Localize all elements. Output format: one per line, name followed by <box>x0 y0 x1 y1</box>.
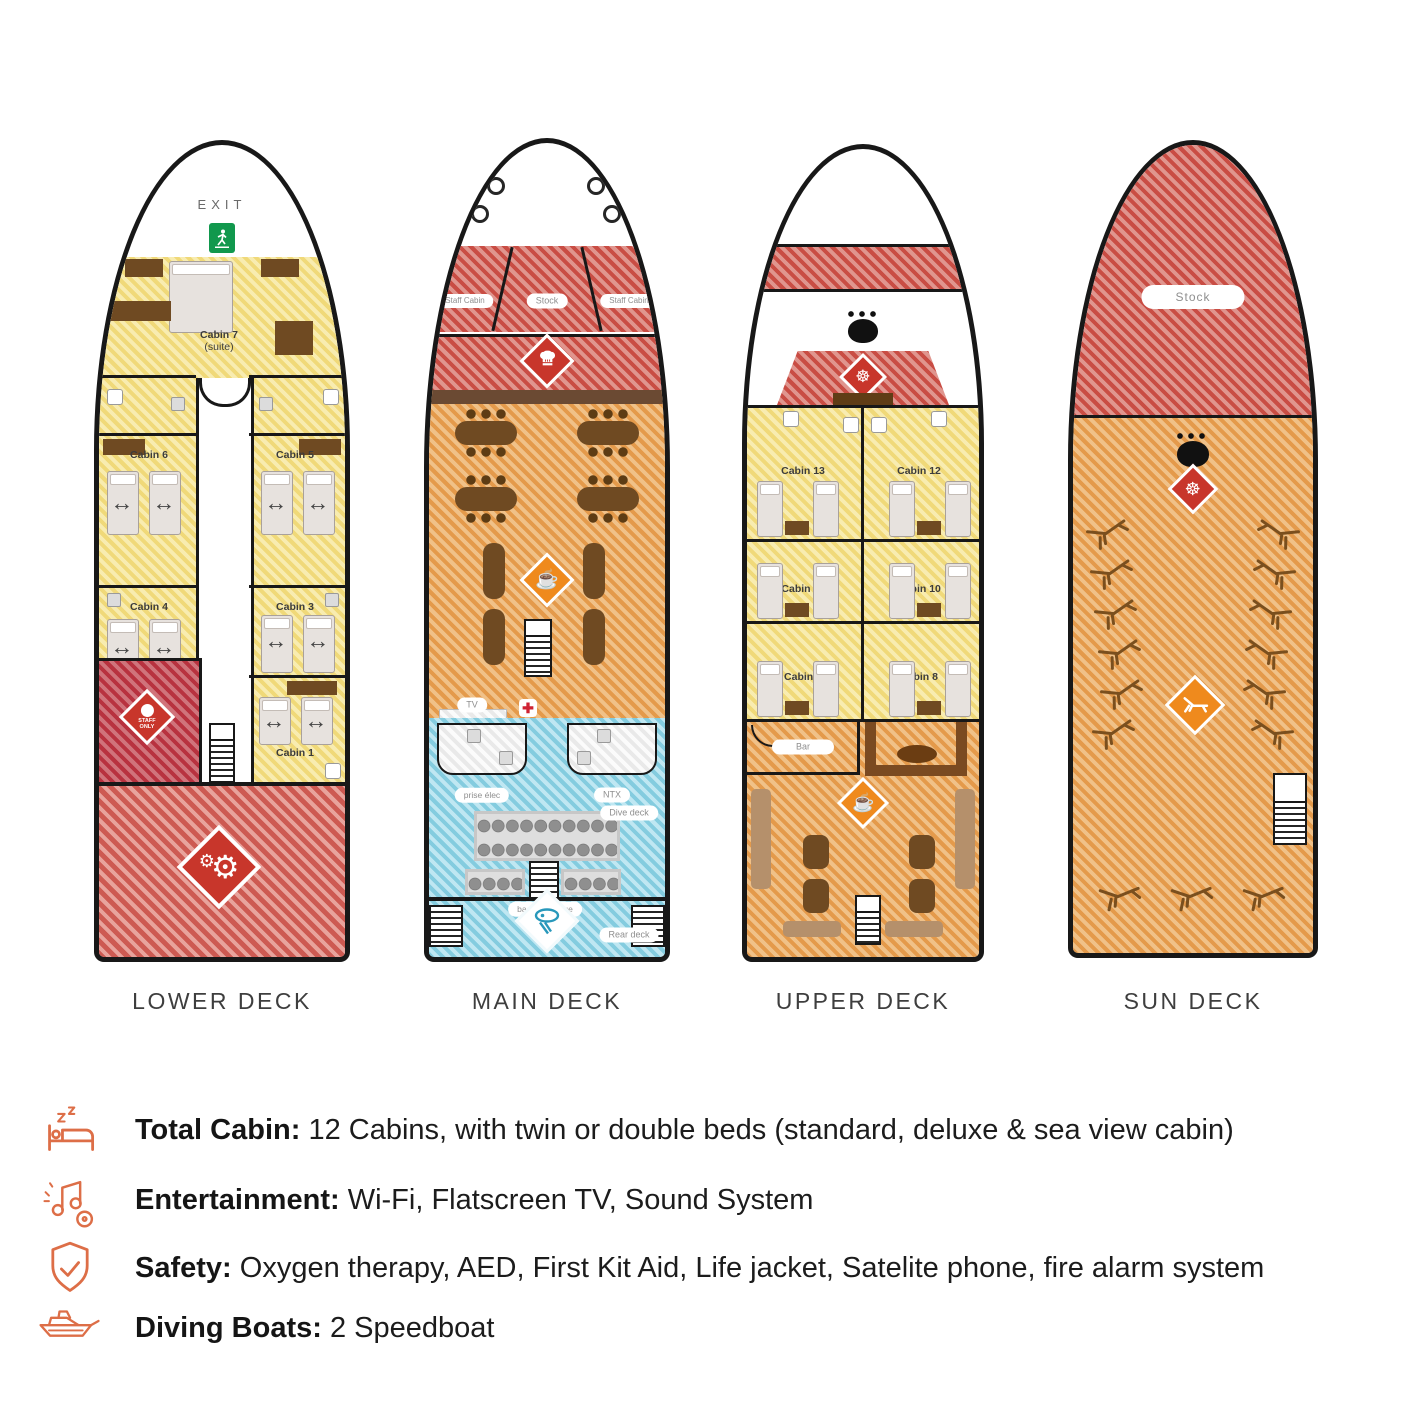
sideboard <box>429 390 665 404</box>
stairs-landing <box>1273 773 1307 803</box>
twin-bed <box>757 661 783 717</box>
nightstand <box>785 701 809 715</box>
staff-only-icon-inner: STAFF ONLY <box>130 695 164 739</box>
toilet <box>577 751 591 765</box>
dive-mask-glyph <box>527 895 567 947</box>
wall <box>249 433 345 436</box>
head-compartment <box>567 723 657 775</box>
helm-icon: ☸ <box>1178 470 1208 509</box>
dining-chairs <box>588 447 630 457</box>
staff-cabin-label: Staff Cabin <box>600 294 657 308</box>
total-cabin-label: Total Cabin: <box>135 1114 300 1146</box>
porthole <box>603 205 621 223</box>
diving-boat-icon <box>36 1302 102 1347</box>
twin-bed <box>889 481 915 537</box>
cabin13-label: Cabin 13 <box>781 465 825 477</box>
convertible-bed-arrow: ↔ <box>305 708 328 735</box>
stairs <box>524 635 552 677</box>
dining-chairs <box>588 409 630 419</box>
total-cabin-value: 12 Cabins, with twin or double beds (sta… <box>300 1114 1233 1146</box>
sink <box>871 417 887 433</box>
stairs <box>209 739 235 783</box>
lounge-seat <box>803 835 829 869</box>
lounger-glyph <box>1177 681 1214 729</box>
convertible-bed-arrow: ↔ <box>307 490 330 517</box>
helm-icon: ☸ <box>849 359 877 395</box>
safety-shield-icon <box>44 1240 96 1303</box>
nightstand <box>785 603 809 617</box>
nightstand <box>917 603 941 617</box>
wall <box>857 722 860 775</box>
dresser <box>107 301 171 321</box>
main-deck-caption: MAIN DECK <box>422 988 672 1015</box>
cabin3-label: Cabin 3 <box>276 601 314 613</box>
entertainment-icon <box>40 1172 98 1233</box>
dining-table <box>455 487 517 511</box>
main-deck-hull: Staff Cabin Stock Staff Cabin ☕ <box>424 138 670 962</box>
lounge-seat <box>909 835 935 869</box>
wall <box>249 585 345 588</box>
safety-row: Safety: Oxygen therapy, AED, First Kit A… <box>135 1252 1264 1285</box>
shower <box>107 593 121 607</box>
tv-label: TV <box>457 698 487 713</box>
luggage-rack <box>125 259 163 277</box>
lower-deck-hull: EXIT Cabin 7 (suite) Cabin <box>94 140 350 962</box>
first-aid-icon: ✚ <box>519 699 537 717</box>
nightstand <box>785 521 809 535</box>
tank-rack <box>474 811 620 861</box>
twin-bed <box>889 563 915 619</box>
suite-double-bed <box>169 261 233 333</box>
luggage-rack <box>261 259 299 277</box>
bar-label: Bar <box>772 740 834 755</box>
convertible-bed-arrow: ↔ <box>263 708 286 735</box>
diving-boats-value: 2 Speedboat <box>322 1312 495 1344</box>
twin-bed <box>945 481 971 537</box>
ship-wheel <box>848 319 878 343</box>
shower <box>325 593 339 607</box>
twin-bed <box>813 481 839 537</box>
dining-chairs <box>466 447 508 457</box>
cabin5-label: Cabin 5 <box>276 449 314 461</box>
lower-deck-caption: LOWER DECK <box>97 988 347 1015</box>
cabin12-label: Cabin 12 <box>897 465 941 477</box>
sofa <box>583 543 605 599</box>
lounge-seat <box>803 879 829 913</box>
wall <box>861 405 864 719</box>
bench <box>751 789 771 889</box>
helm-spokes <box>848 311 881 317</box>
staff-cabin-label: Staff Cabin <box>436 294 493 308</box>
nightstand <box>917 521 941 535</box>
rear-deck-label: Rear deck <box>599 928 658 943</box>
wall <box>99 585 196 588</box>
twin-bed <box>945 563 971 619</box>
diving-boats-label: Diving Boats: <box>135 1312 322 1344</box>
wall <box>99 375 196 378</box>
sun-deck-hull: Stock ☸ <box>1068 140 1318 958</box>
stairs-landing <box>524 619 552 637</box>
wall <box>99 658 199 661</box>
porthole <box>487 177 505 195</box>
bench <box>955 789 975 889</box>
convertible-bed-arrow: ↔ <box>111 490 134 517</box>
dining-chairs <box>588 475 630 485</box>
convertible-bed-arrow: ↔ <box>307 628 330 655</box>
twin-bed <box>813 563 839 619</box>
sink <box>107 389 123 405</box>
deck-plan-page: EXIT Cabin 7 (suite) Cabin <box>0 0 1410 1410</box>
dining-chairs <box>466 513 508 523</box>
entertainment-label: Entertainment: <box>135 1184 340 1216</box>
shower <box>171 397 185 411</box>
tank-rack <box>465 869 525 895</box>
sofa <box>583 609 605 665</box>
twin-bed <box>945 661 971 717</box>
wall <box>747 621 979 624</box>
dining-chairs <box>466 475 508 485</box>
twin-bed <box>757 563 783 619</box>
helm-spokes <box>1177 433 1210 439</box>
shower <box>467 729 481 743</box>
upper-deck-hull: ☸ Cabin 13 Cabin 12 Cabin 11 Cabin 10 Ca… <box>742 144 984 962</box>
stairs-landing <box>209 723 235 741</box>
dining-table <box>577 421 639 445</box>
head-compartment <box>437 723 527 775</box>
tank-rack <box>561 869 621 895</box>
sink <box>323 389 339 405</box>
stairs <box>855 911 881 945</box>
wall <box>99 782 345 786</box>
dining-chairs <box>466 409 508 419</box>
sofa <box>483 543 505 599</box>
cabin7-suite: (suite) <box>200 341 238 353</box>
dresser <box>275 321 313 355</box>
sink <box>783 411 799 427</box>
bow-sun-area <box>747 244 979 292</box>
diving-boats-row: Diving Boats: 2 Speedboat <box>135 1312 494 1345</box>
convertible-bed-arrow: ↔ <box>153 490 176 517</box>
chef-hat-icon <box>530 340 563 383</box>
sink <box>843 417 859 433</box>
upper-deck-caption: UPPER DECK <box>738 988 988 1015</box>
twin-bed <box>757 481 783 537</box>
safety-label: Safety: <box>135 1252 232 1284</box>
bed-icon <box>42 1104 98 1159</box>
bench <box>885 921 943 937</box>
bow-stock-area <box>1073 145 1313 417</box>
engine-icon-inner: ⚙ ⚙ <box>193 833 245 901</box>
cabin6-label: Cabin 6 <box>130 449 168 461</box>
total-cabin-row: Total Cabin: 12 Cabins, with twin or dou… <box>135 1114 1234 1147</box>
dining-table <box>455 421 517 445</box>
safety-value: Oxygen therapy, AED, First Kit Aid, Life… <box>232 1252 1265 1284</box>
exit-sign-icon <box>209 223 235 253</box>
cabin7-label: Cabin 7 (suite) <box>200 329 238 353</box>
sofa <box>483 609 505 665</box>
wall <box>99 433 196 436</box>
bar-table <box>897 745 937 763</box>
staff-only-dot <box>141 704 154 717</box>
stairs <box>1273 801 1307 845</box>
cabin4-label: Cabin 4 <box>130 601 168 613</box>
wall <box>747 539 979 542</box>
side-stairs <box>429 905 463 947</box>
dresser <box>287 681 337 695</box>
twin-bed <box>889 661 915 717</box>
convertible-bed-arrow: ↔ <box>265 628 288 655</box>
convertible-bed-arrow: ↔ <box>111 634 134 661</box>
wall <box>747 772 860 775</box>
stairs-landing <box>855 895 881 913</box>
coffee-cup-icon: ☕ <box>847 783 878 823</box>
wall <box>249 375 345 378</box>
convertible-bed-arrow: ↔ <box>153 634 176 661</box>
dive-deck-label: Dive deck <box>600 806 658 821</box>
porthole <box>587 177 605 195</box>
shower <box>597 729 611 743</box>
ntx-label: NTX <box>594 788 630 803</box>
dining-chairs <box>588 513 630 523</box>
staff-stock-area <box>429 246 665 332</box>
sun-deck-caption: SUN DECK <box>1068 988 1318 1015</box>
porthole <box>471 205 489 223</box>
wall <box>249 675 345 678</box>
entertainment-value: Wi-Fi, Flatscreen TV, Sound System <box>340 1184 814 1216</box>
toilet <box>499 751 513 765</box>
cabin7-name: Cabin 7 <box>200 329 238 341</box>
convertible-bed-arrow: ↔ <box>265 490 288 517</box>
wall <box>199 658 202 782</box>
gear-icon: ⚙ <box>211 848 240 886</box>
dining-table <box>577 487 639 511</box>
exit-label: EXIT <box>99 197 345 212</box>
shower <box>259 397 273 411</box>
cabin1-label: Cabin 1 <box>276 747 314 759</box>
twin-bed <box>813 661 839 717</box>
lounge-seat <box>909 879 935 913</box>
sink <box>931 411 947 427</box>
sink <box>325 763 341 779</box>
nightstand <box>917 701 941 715</box>
prise-elec-label: prise élec <box>455 788 509 803</box>
staff-only-text: STAFF ONLY <box>134 718 160 731</box>
entertainment-row: Entertainment: Wi-Fi, Flatscreen TV, Sou… <box>135 1184 813 1217</box>
coffee-cup-icon: ☕ <box>530 559 563 602</box>
bench <box>783 921 841 937</box>
stock-label: Stock <box>527 294 568 309</box>
stock-label: Stock <box>1141 285 1244 309</box>
